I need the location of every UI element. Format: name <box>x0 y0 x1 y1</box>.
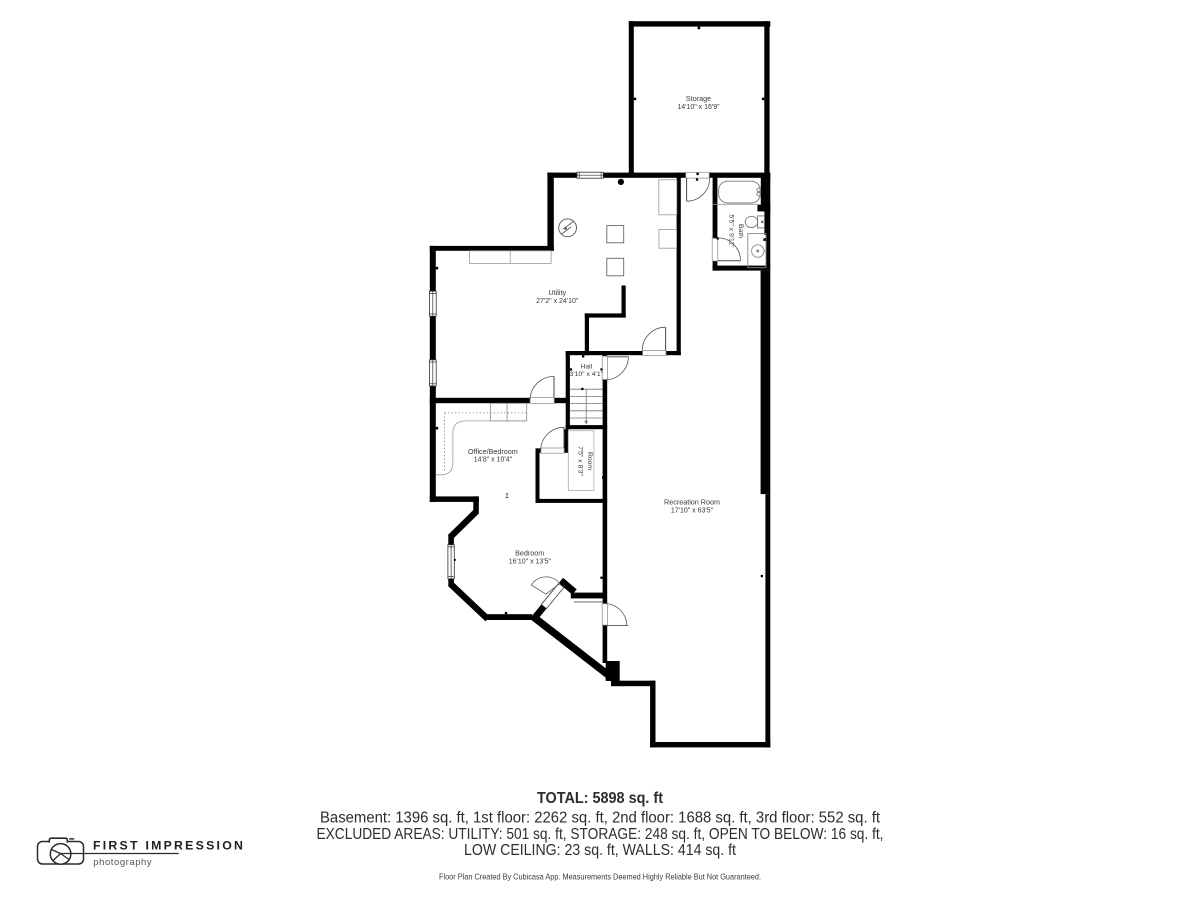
svg-text:7'5" x 8'3": 7'5" x 8'3" <box>576 446 583 476</box>
svg-text:16'10" x 13'5": 16'10" x 13'5" <box>509 559 552 566</box>
svg-text:Utility: Utility <box>549 288 567 297</box>
svg-text:Bedroom: Bedroom <box>515 549 544 558</box>
svg-text:Recreation Room: Recreation Room <box>664 498 720 507</box>
svg-text:3'10" x 4'1": 3'10" x 4'1" <box>570 371 604 378</box>
svg-text:Hall: Hall <box>580 363 592 370</box>
svg-text:Room: Room <box>586 452 593 470</box>
svg-text:photography: photography <box>93 857 152 868</box>
svg-text:27'2" x 24'10": 27'2" x 24'10" <box>536 298 579 305</box>
svg-text:Floor Plan Created By Cubicasa: Floor Plan Created By Cubicasa App. Meas… <box>439 871 761 881</box>
svg-text:EXCLUDED AREAS: UTILITY: 501 s: EXCLUDED AREAS: UTILITY: 501 sq. ft, STO… <box>317 826 884 843</box>
svg-text:LOW CEILING: 23 sq. ft, WALLS:: LOW CEILING: 23 sq. ft, WALLS: 414 sq. f… <box>464 842 737 859</box>
svg-text:17'10" x 63'5": 17'10" x 63'5" <box>671 508 714 515</box>
svg-text:14'10" x 16'9": 14'10" x 16'9" <box>677 104 720 111</box>
svg-text:14'8" x 10'4": 14'8" x 10'4" <box>474 457 513 464</box>
svg-text:5'5" x 9'11": 5'5" x 9'11" <box>728 215 735 249</box>
svg-text:Storage: Storage <box>686 94 711 103</box>
svg-text:FIRST IMPRESSION: FIRST IMPRESSION <box>93 839 245 853</box>
svg-text:Bath: Bath <box>737 224 744 238</box>
svg-text:Basement: 1396 sq. ft, 1st flo: Basement: 1396 sq. ft, 1st floor: 2262 s… <box>320 810 881 827</box>
svg-text:TOTAL: 5898 sq. ft: TOTAL: 5898 sq. ft <box>537 790 664 807</box>
svg-text:Office/Bedroom: Office/Bedroom <box>468 447 518 456</box>
